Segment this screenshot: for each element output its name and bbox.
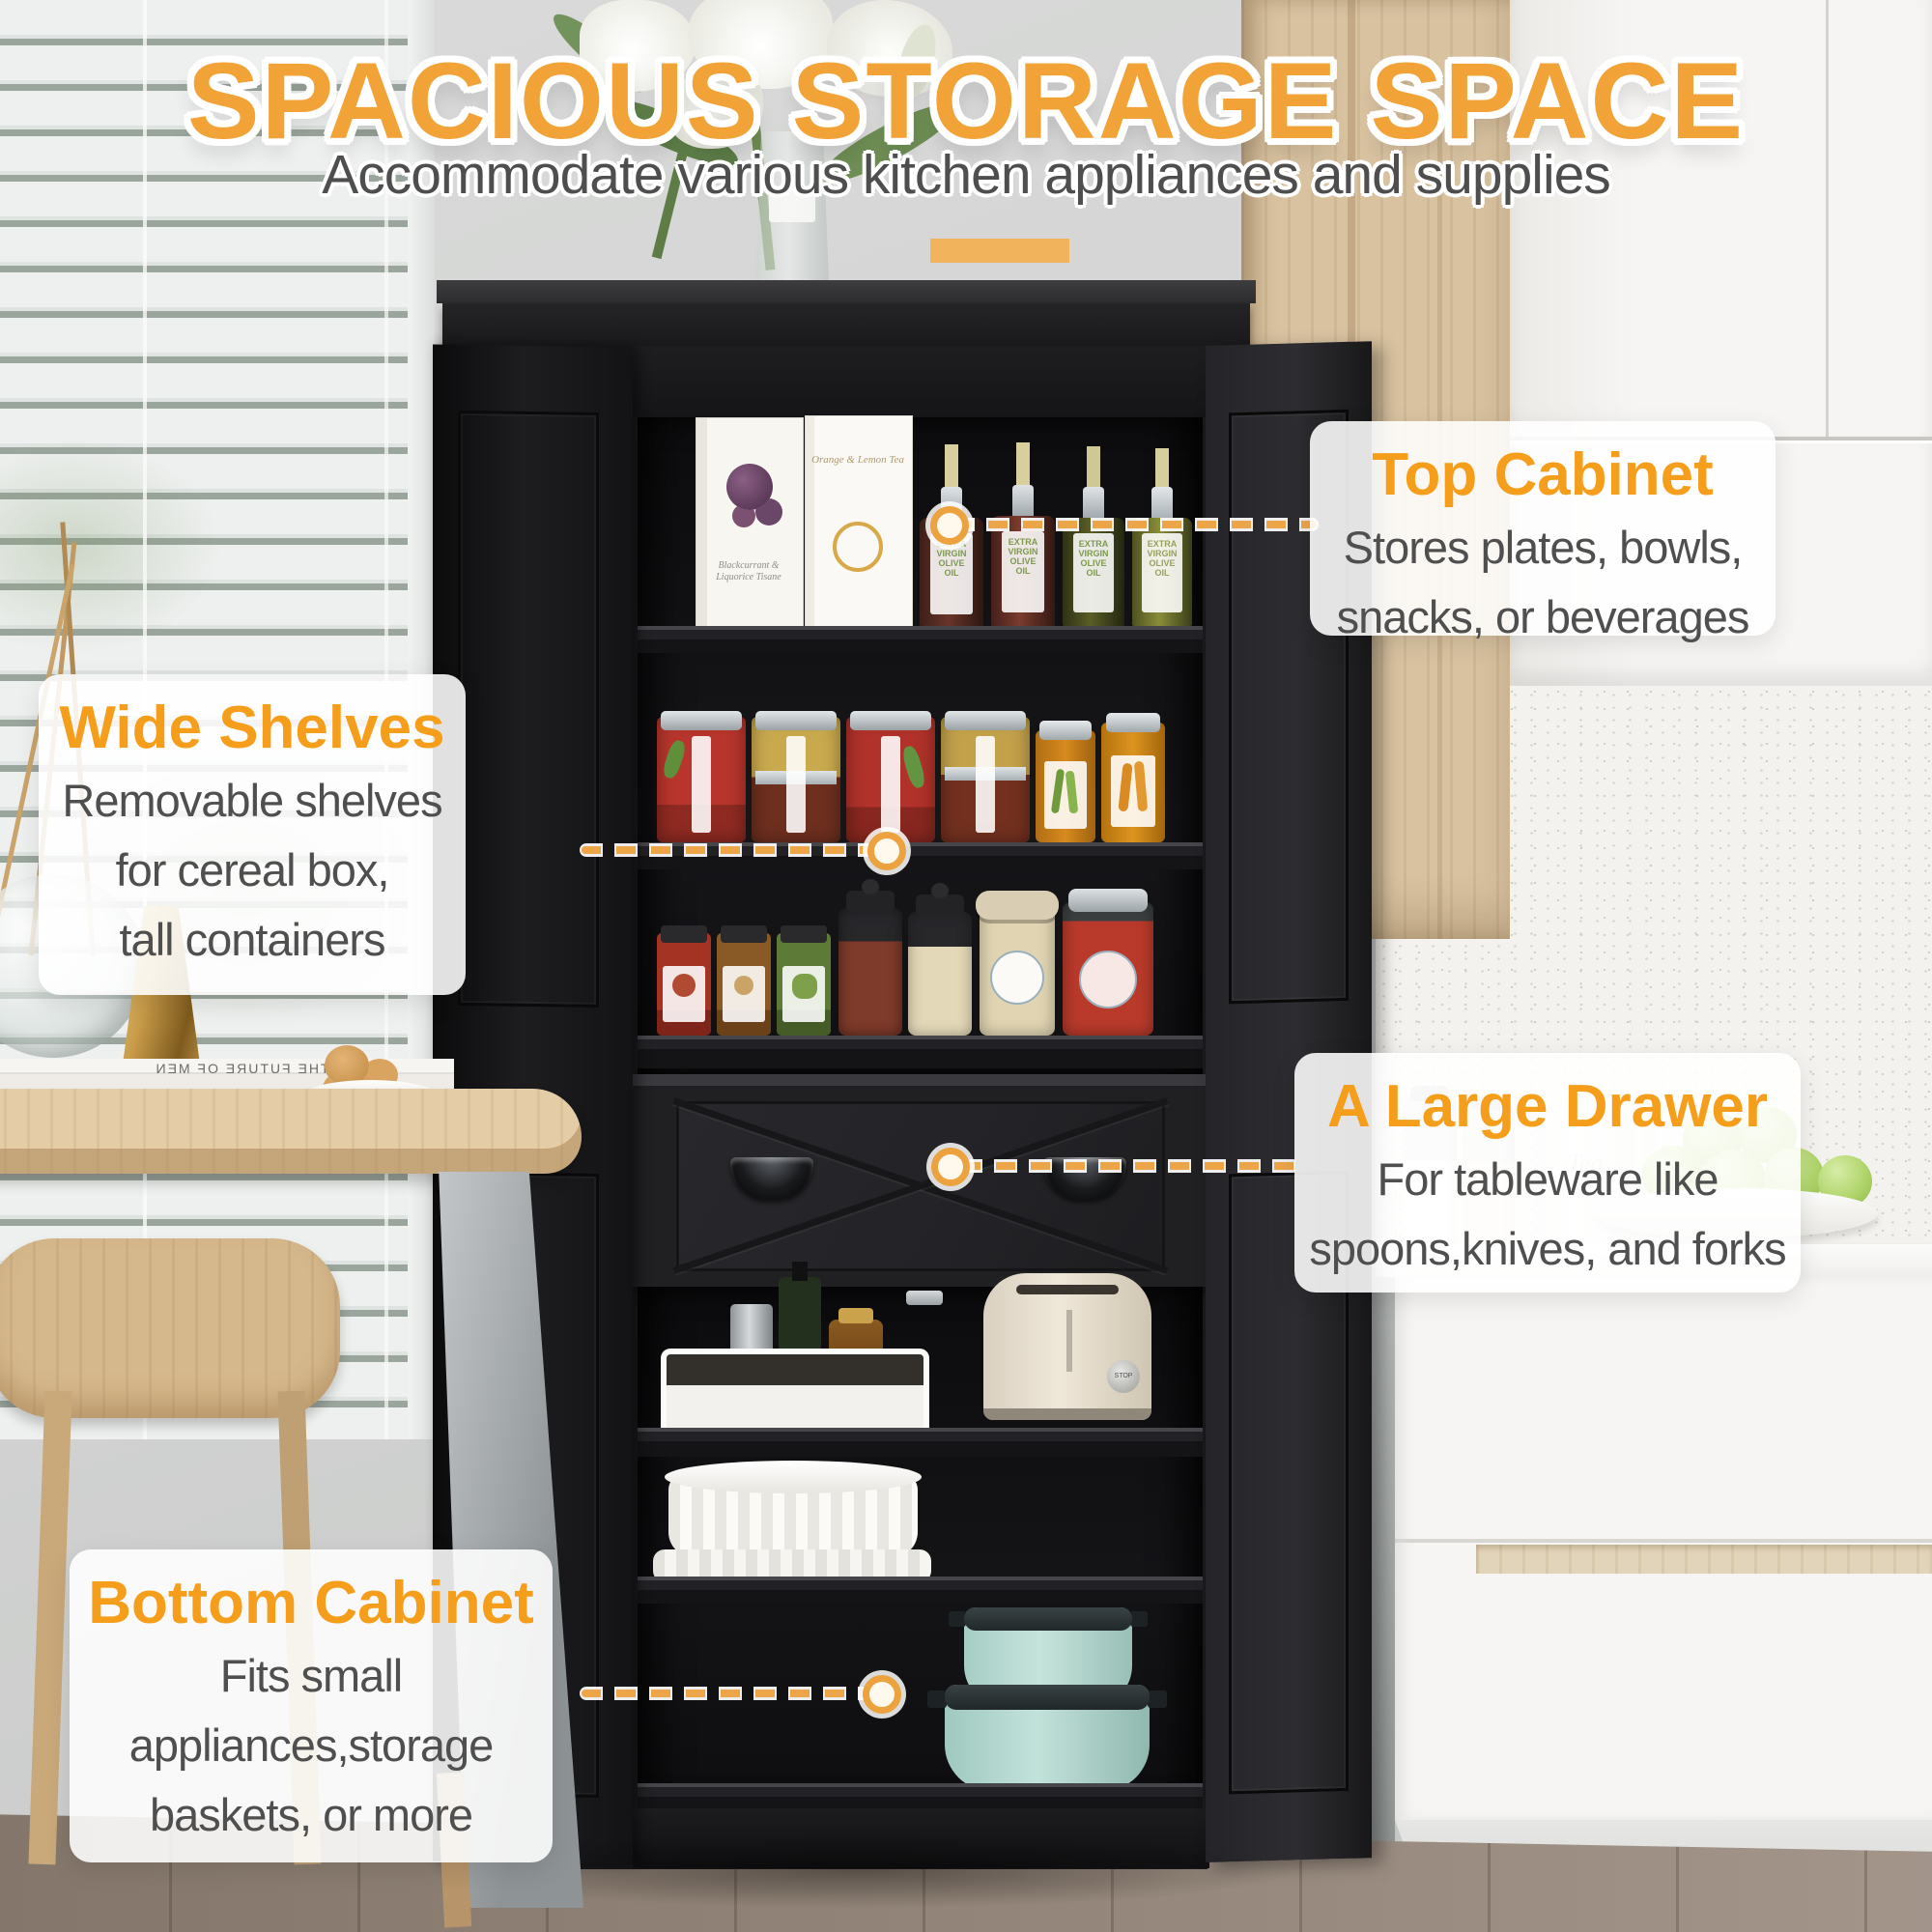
white-tray (661, 1349, 929, 1435)
leader-top-cabinet (952, 518, 1319, 531)
glass-canister (908, 912, 972, 1036)
mint-pot-large (945, 1685, 1150, 1791)
callout-line: Stores plates, bowls, (1310, 513, 1776, 582)
olive-oil-label: EXTRA VIRGIN OLIVE OIL (1073, 533, 1114, 612)
page-subtitle: Accommodate various kitchen appliances a… (0, 143, 1932, 207)
leader-node-bottom-cabinet (863, 1675, 901, 1714)
olive-oil-bottle: EXTRA VIRGIN OLIVE OIL (1132, 448, 1192, 626)
lace-top-jar (980, 902, 1055, 1036)
pantry-floor-board (638, 1783, 1203, 1810)
tea-box-wheel (833, 522, 883, 572)
olive-oil-label: EXTRA VIRGIN OLIVE OIL (1142, 533, 1182, 612)
dining-table-top (0, 1089, 582, 1174)
chili-jar (846, 717, 935, 842)
lace-top-jar (1063, 902, 1153, 1036)
callout-line: appliances,storage (70, 1711, 553, 1780)
toaster-slot (1016, 1285, 1119, 1294)
toaster: STOP (983, 1273, 1151, 1420)
callout-line: Removable shelves (39, 766, 466, 836)
small-jar (777, 933, 831, 1036)
toaster-dial: STOP (1107, 1360, 1140, 1393)
callout-title: Wide Shelves (39, 694, 466, 762)
door-latch (906, 1291, 943, 1305)
accent-bar (930, 239, 1069, 263)
leader-large-drawer (959, 1159, 1299, 1173)
fluted-baking-dish (668, 1474, 918, 1557)
pantry-top-frame (633, 346, 1207, 417)
lower-shelf-board-1 (638, 1428, 1203, 1457)
callout-title: Bottom Cabinet (70, 1569, 553, 1637)
grain-jar (752, 717, 840, 842)
callout-line: spoons,knives, and forks (1294, 1214, 1801, 1284)
pantry-cornice (437, 280, 1256, 303)
olive-oil-label: EXTRA VIRGIN OLIVE OIL (1002, 531, 1044, 612)
sauce-jar-orange (1036, 730, 1095, 842)
callout-bottom-cabinet: Bottom Cabinet Fits small appliances,sto… (70, 1549, 553, 1862)
callout-line: snacks, or beverages (1310, 582, 1776, 652)
olive-oil-bottle: EXTRA VIRGIN OLIVE OIL (1063, 446, 1124, 626)
shelf-board-3 (638, 1036, 1203, 1068)
callout-title: A Large Drawer (1294, 1072, 1801, 1141)
callout-line: Fits small (70, 1641, 553, 1711)
grain-jar (941, 717, 1030, 842)
leader-wide-shelves (580, 843, 881, 857)
wood-handle-strip (1476, 1545, 1932, 1574)
leader-node-wide-shelves (867, 832, 906, 870)
small-jar (657, 933, 711, 1036)
olive-oil-bottle: EXTRA VIRGIN OLIVE OIL (991, 442, 1055, 626)
sauce-jar-orange (1101, 723, 1165, 842)
olive-oil-label: EXTRA VIRGIN OLIVE OIL (930, 533, 973, 614)
callout-line: baskets, or more (70, 1780, 553, 1850)
callout-top-cabinet: Top Cabinet Stores plates, bowls, snacks… (1310, 421, 1776, 636)
lower-shelf-board-2 (638, 1577, 1203, 1604)
callout-line: tall containers (39, 905, 466, 975)
glass-canister (838, 908, 902, 1036)
product-infographic: Tea Coffee Blackcurrant & Liquorice Tisa… (0, 0, 1932, 1932)
callout-line: for cereal box, (39, 836, 466, 905)
shelf-board-1 (638, 626, 1203, 653)
tea-box-berries (726, 464, 773, 510)
drawer-cup-handle (730, 1157, 813, 1200)
tea-box-right-label: Orange & Lemon Tea (810, 454, 905, 467)
toaster-lever (1066, 1310, 1072, 1372)
drawer-divider (1395, 1539, 1932, 1543)
callout-title: Top Cabinet (1310, 440, 1776, 509)
chili-jar (657, 717, 746, 842)
small-jar (717, 933, 771, 1036)
leader-node-top-cabinet (930, 506, 969, 545)
leader-bottom-cabinet (580, 1687, 877, 1700)
pantry-cornice-front (442, 303, 1250, 346)
tea-box-left-label: Blackcurrant & Liquorice Tisane (701, 560, 796, 583)
drawer-front (676, 1101, 1165, 1271)
leader-node-large-drawer (931, 1148, 970, 1186)
callout-large-drawer: A Large Drawer For tableware like spoons… (1294, 1053, 1801, 1293)
callout-wide-shelves: Wide Shelves Removable shelves for cerea… (39, 674, 466, 995)
callout-line: For tableware like (1294, 1145, 1801, 1214)
tea-box (696, 417, 804, 628)
chair-post (28, 1391, 71, 1865)
